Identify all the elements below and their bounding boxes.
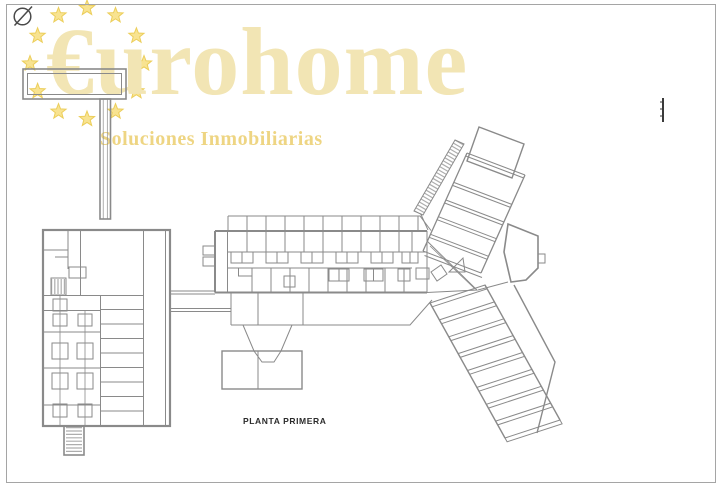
floor-plan-drawing: PLANTA PRIMERA (0, 0, 720, 488)
plan-terrace-boundary (514, 285, 555, 433)
plan-upper-wing (414, 127, 525, 278)
plan-title-label: PLANTA PRIMERA (243, 416, 326, 426)
plan-junction-triangle (421, 214, 509, 293)
plan-stage-block (222, 293, 432, 390)
plan-left-building (43, 230, 170, 455)
scale-mark-icon (660, 98, 663, 122)
plan-connector-corridor (170, 291, 231, 312)
plan-pentagon-room (504, 224, 545, 282)
plan-lower-wing (430, 285, 562, 442)
no-entry-icon (14, 7, 32, 26)
plan-central-building (203, 216, 431, 293)
plan-t-structure (23, 69, 126, 219)
floor-plan-page: €urohome Soluciones Inmobiliarias (0, 0, 720, 488)
floor-plan (23, 69, 562, 455)
